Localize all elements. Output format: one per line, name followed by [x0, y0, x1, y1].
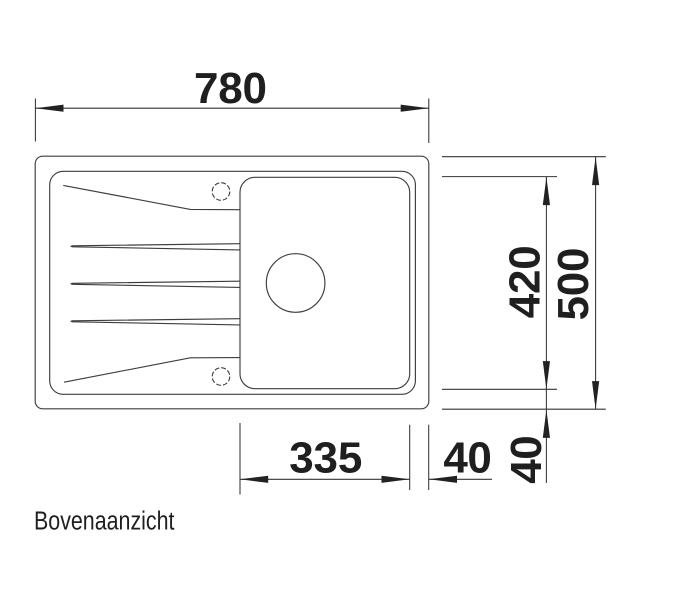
- svg-text:40: 40: [443, 433, 492, 482]
- svg-text:335: 335: [289, 433, 362, 482]
- svg-text:420: 420: [501, 245, 550, 318]
- svg-text:40: 40: [502, 435, 551, 484]
- svg-text:780: 780: [194, 64, 267, 113]
- svg-text:Bovenaanzicht: Bovenaanzicht: [34, 508, 175, 536]
- svg-text:500: 500: [549, 248, 598, 321]
